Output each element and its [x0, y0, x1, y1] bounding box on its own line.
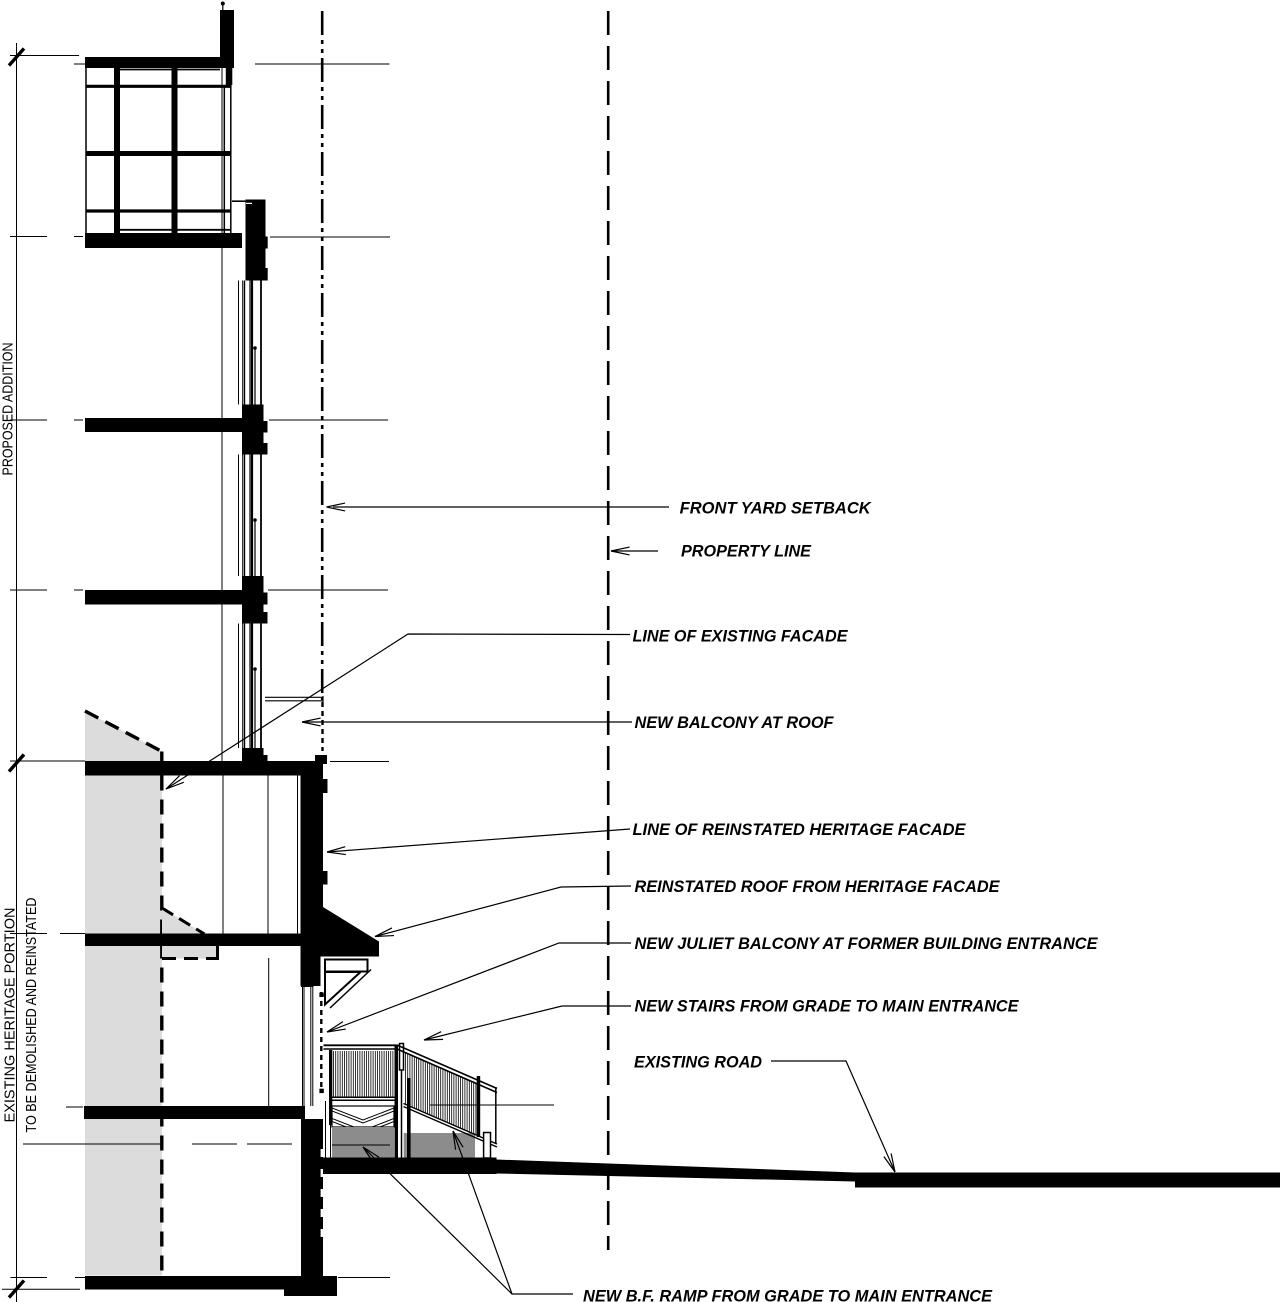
- svg-text:LINE OF EXISTING FACADE: LINE OF EXISTING FACADE: [633, 628, 849, 646]
- svg-text:EXISTING HERITAGE PORTION: EXISTING HERITAGE PORTION: [2, 908, 19, 1123]
- svg-text:NEW BALCONY AT ROOF: NEW BALCONY AT ROOF: [635, 714, 835, 732]
- svg-text:TO BE DEMOLISHED AND REINSTATE: TO BE DEMOLISHED AND REINSTATED: [23, 897, 40, 1132]
- svg-text:REINSTATED ROOF FROM HERITAGE: REINSTATED ROOF FROM HERITAGE FACADE: [635, 878, 1001, 896]
- svg-text:LINE OF REINSTATED HERITAGE FA: LINE OF REINSTATED HERITAGE FACADE: [633, 821, 967, 839]
- svg-text:NEW STAIRS FROM GRADE TO MAIN: NEW STAIRS FROM GRADE TO MAIN ENTRANCE: [635, 998, 1020, 1016]
- svg-text:PROPERTY LINE: PROPERTY LINE: [681, 542, 812, 560]
- svg-text:PROPOSED ADDITION: PROPOSED ADDITION: [0, 343, 17, 476]
- svg-text:FRONT YARD SETBACK: FRONT YARD SETBACK: [680, 499, 872, 517]
- svg-text:NEW JULIET BALCONY AT FORMER B: NEW JULIET BALCONY AT FORMER BUILDING EN…: [635, 935, 1099, 953]
- svg-text:EXISTING ROAD: EXISTING ROAD: [634, 1054, 762, 1072]
- svg-text:NEW B.F. RAMP FROM GRADE TO MA: NEW B.F. RAMP FROM GRADE TO MAIN ENTRANC…: [583, 1288, 993, 1302]
